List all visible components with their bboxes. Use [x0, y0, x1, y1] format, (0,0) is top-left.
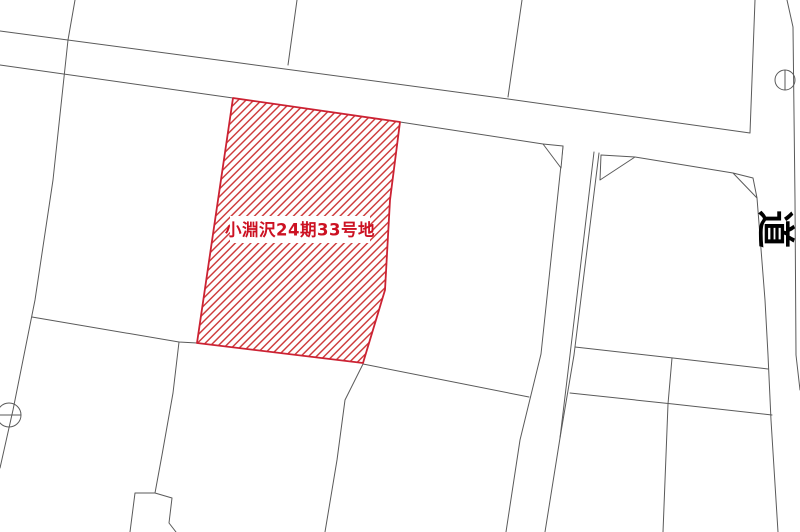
map-background	[0, 0, 800, 532]
road-label-text: 道	[753, 210, 797, 248]
cadastral-map: 小淵沢24期33号地 道	[0, 0, 800, 532]
cadastral-map-canvas: 小淵沢24期33号地 道	[0, 0, 800, 532]
parcel-label: 小淵沢24期33号地	[225, 216, 375, 243]
parcel-label-text: 小淵沢24期33号地	[225, 220, 375, 240]
